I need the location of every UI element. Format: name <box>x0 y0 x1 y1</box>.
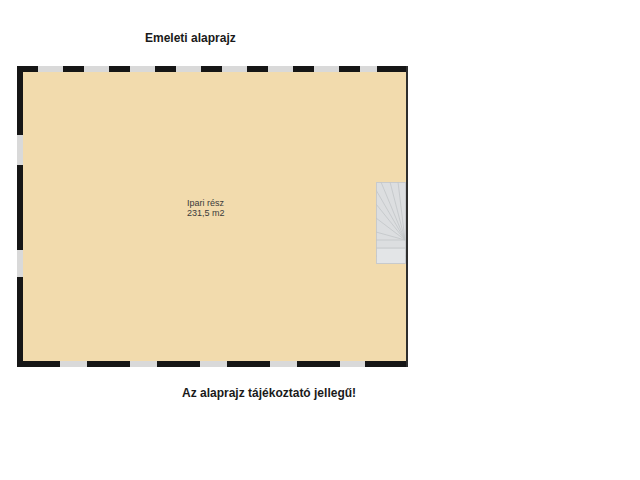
top-right-corner-wall <box>377 66 408 72</box>
bottom-wall-with-windows <box>17 361 408 367</box>
page-title: Emeleti alaprajz <box>145 31 236 45</box>
left-wall-window-upper <box>17 135 23 165</box>
right-wall <box>406 66 408 367</box>
floor-plan-drawing: Ipari rész 231,5 m2 <box>17 66 408 367</box>
left-wall <box>17 66 23 367</box>
disclaimer-text: Az alaprajz tájékoztató jellegű! <box>182 386 356 400</box>
top-wall-with-windows <box>17 66 408 72</box>
bottom-right-corner-wall <box>365 361 408 367</box>
left-wall-window-lower <box>17 250 23 277</box>
room-name: Ipari rész <box>187 198 225 208</box>
room-area: 231,5 m2 <box>187 208 225 218</box>
floor-plan-page: Emeleti alaprajz Ipari rész 231,5 m2 <box>0 0 640 480</box>
room-label: Ipari rész 231,5 m2 <box>187 198 225 218</box>
staircase <box>376 182 406 264</box>
